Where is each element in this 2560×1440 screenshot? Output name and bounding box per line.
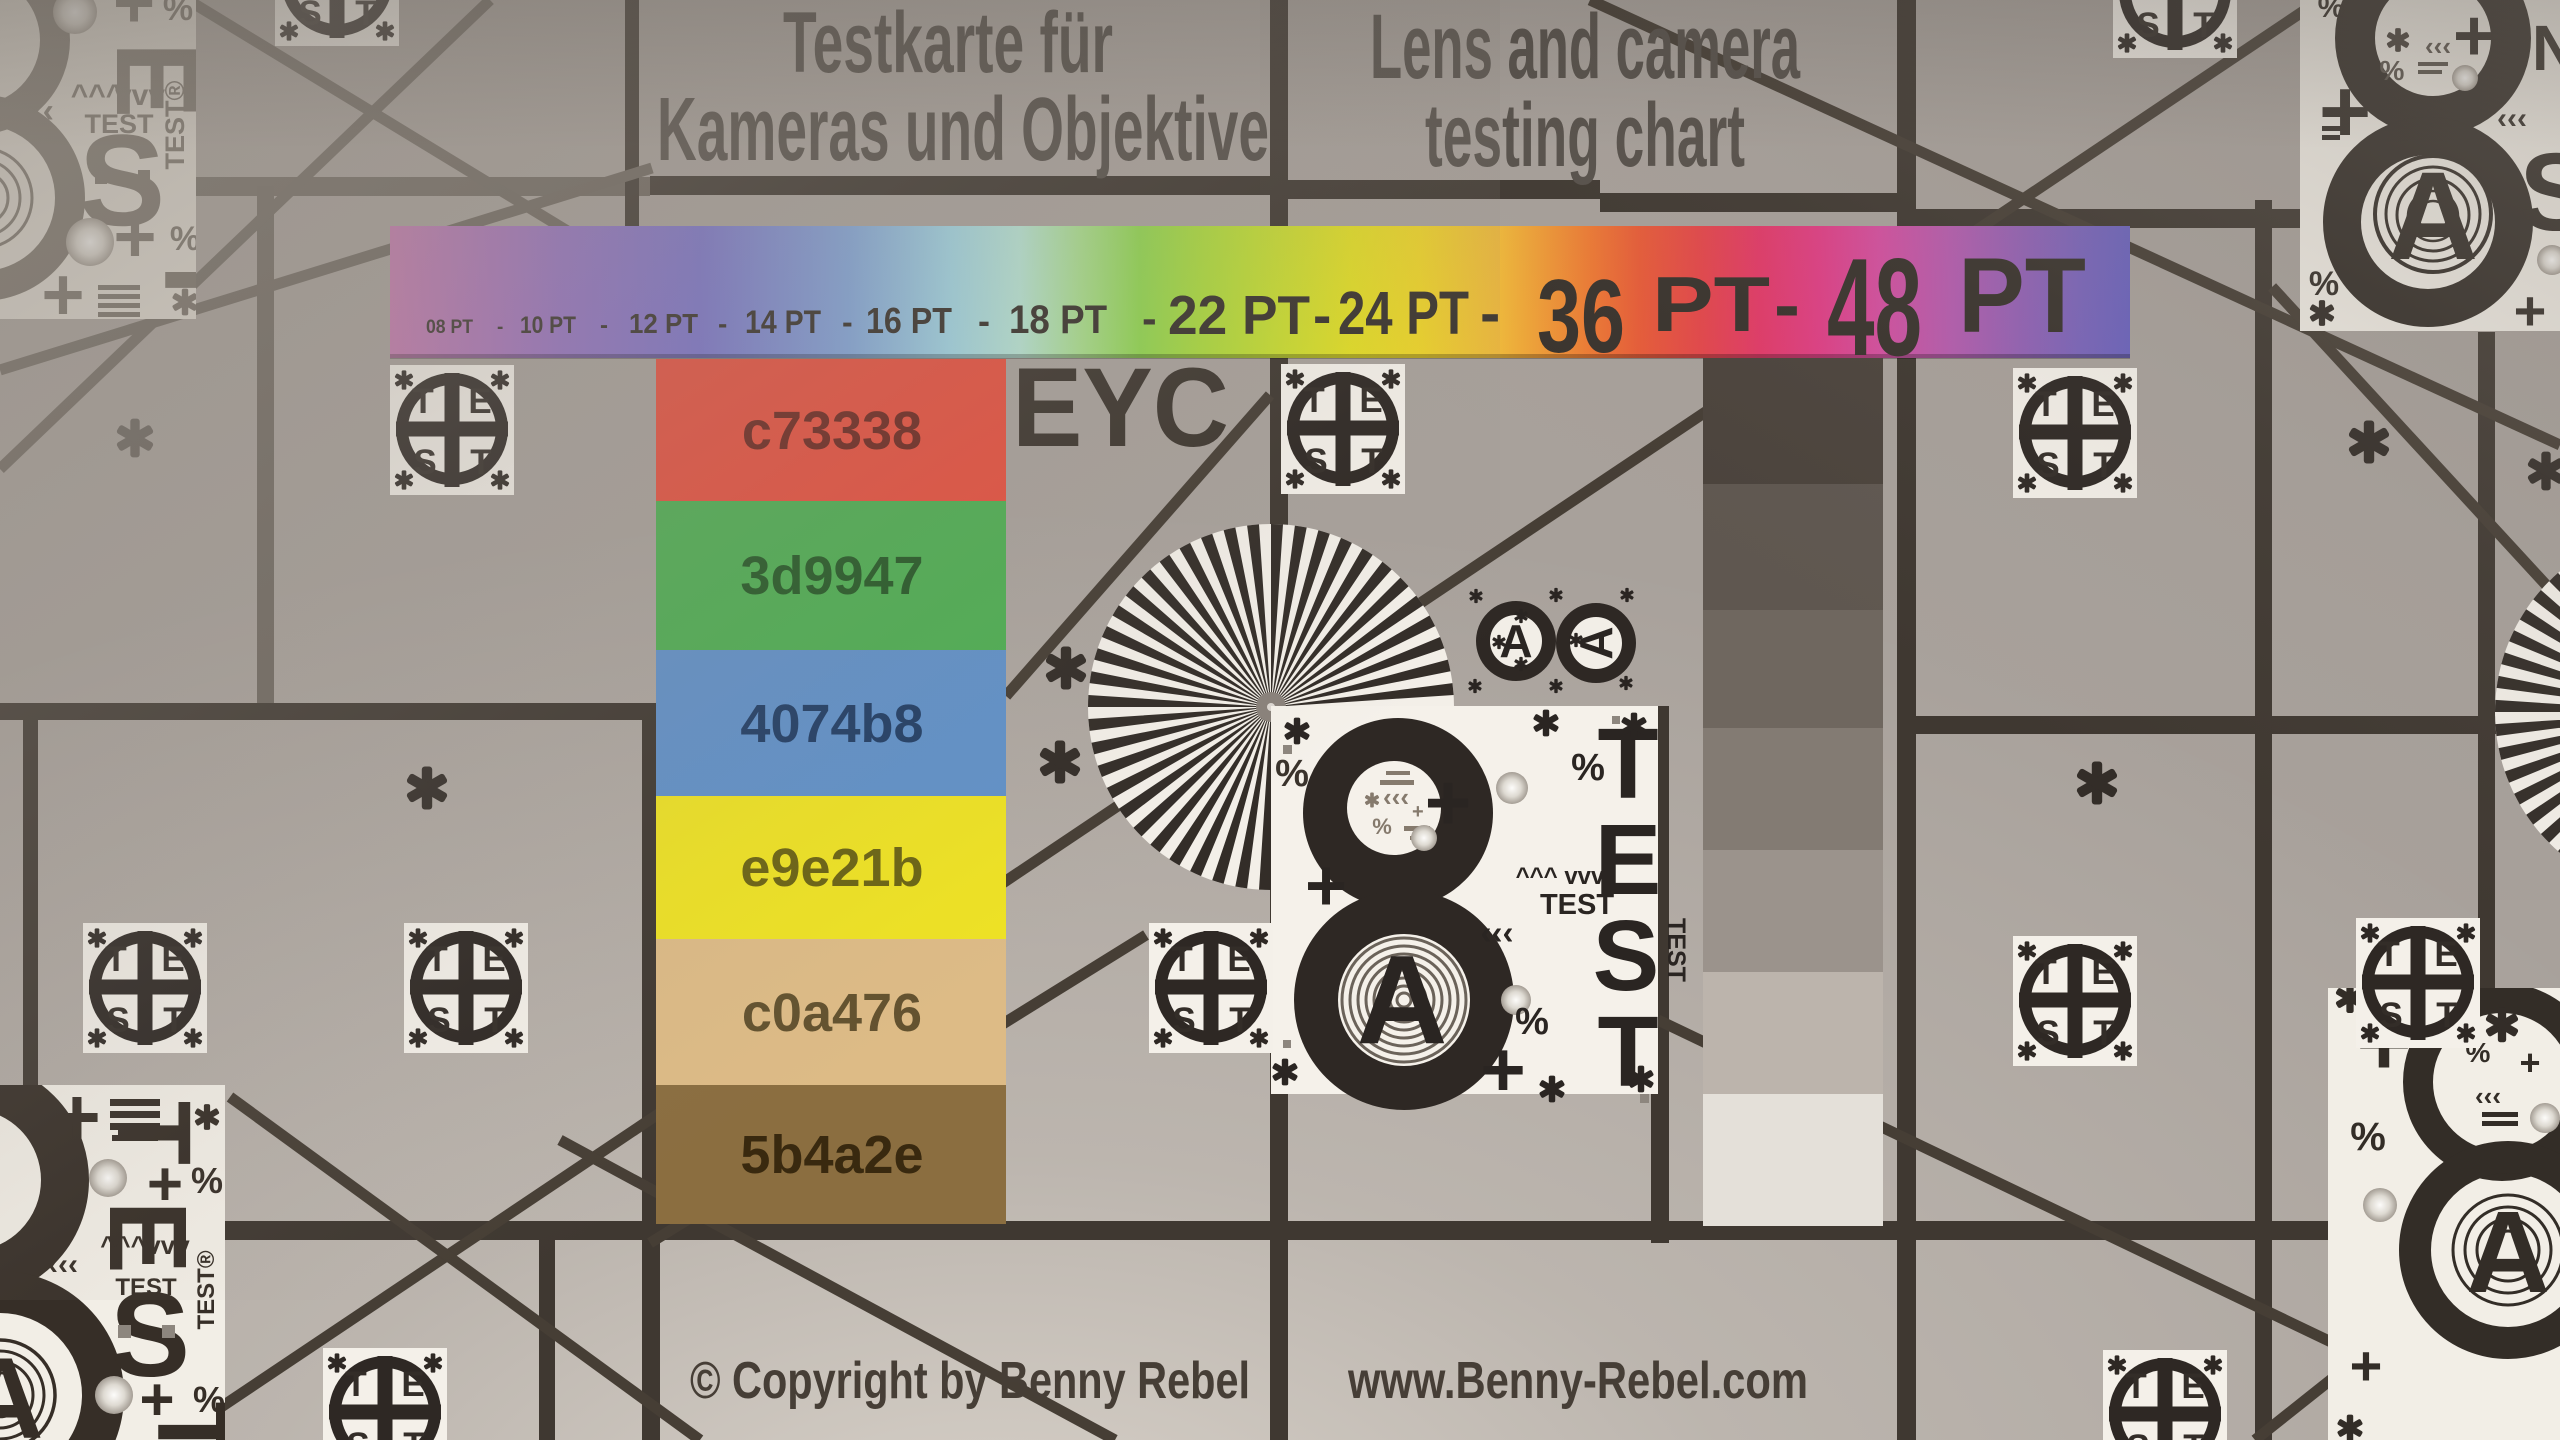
svg-text:A: A [0,1335,44,1440]
svg-text:TEST: TEST [1662,918,1690,982]
svg-text:+: + [2519,1042,2540,1083]
svg-text:‹‹‹: ‹‹‹ [2475,1081,2501,1111]
svg-text:+: + [2350,1334,2383,1397]
svg-text:© Copyright by Benny Rebel: © Copyright by Benny Rebel [690,1352,1250,1410]
svg-text:A: A [2466,1187,2550,1317]
svg-text:www.Benny-Rebel.com: www.Benny-Rebel.com [1347,1352,1808,1410]
svg-text:T: T [1597,996,1658,1108]
svg-text:%: % [2350,1115,2386,1159]
svg-text:%: % [193,1379,225,1420]
svg-text:%: % [1515,1001,1549,1043]
